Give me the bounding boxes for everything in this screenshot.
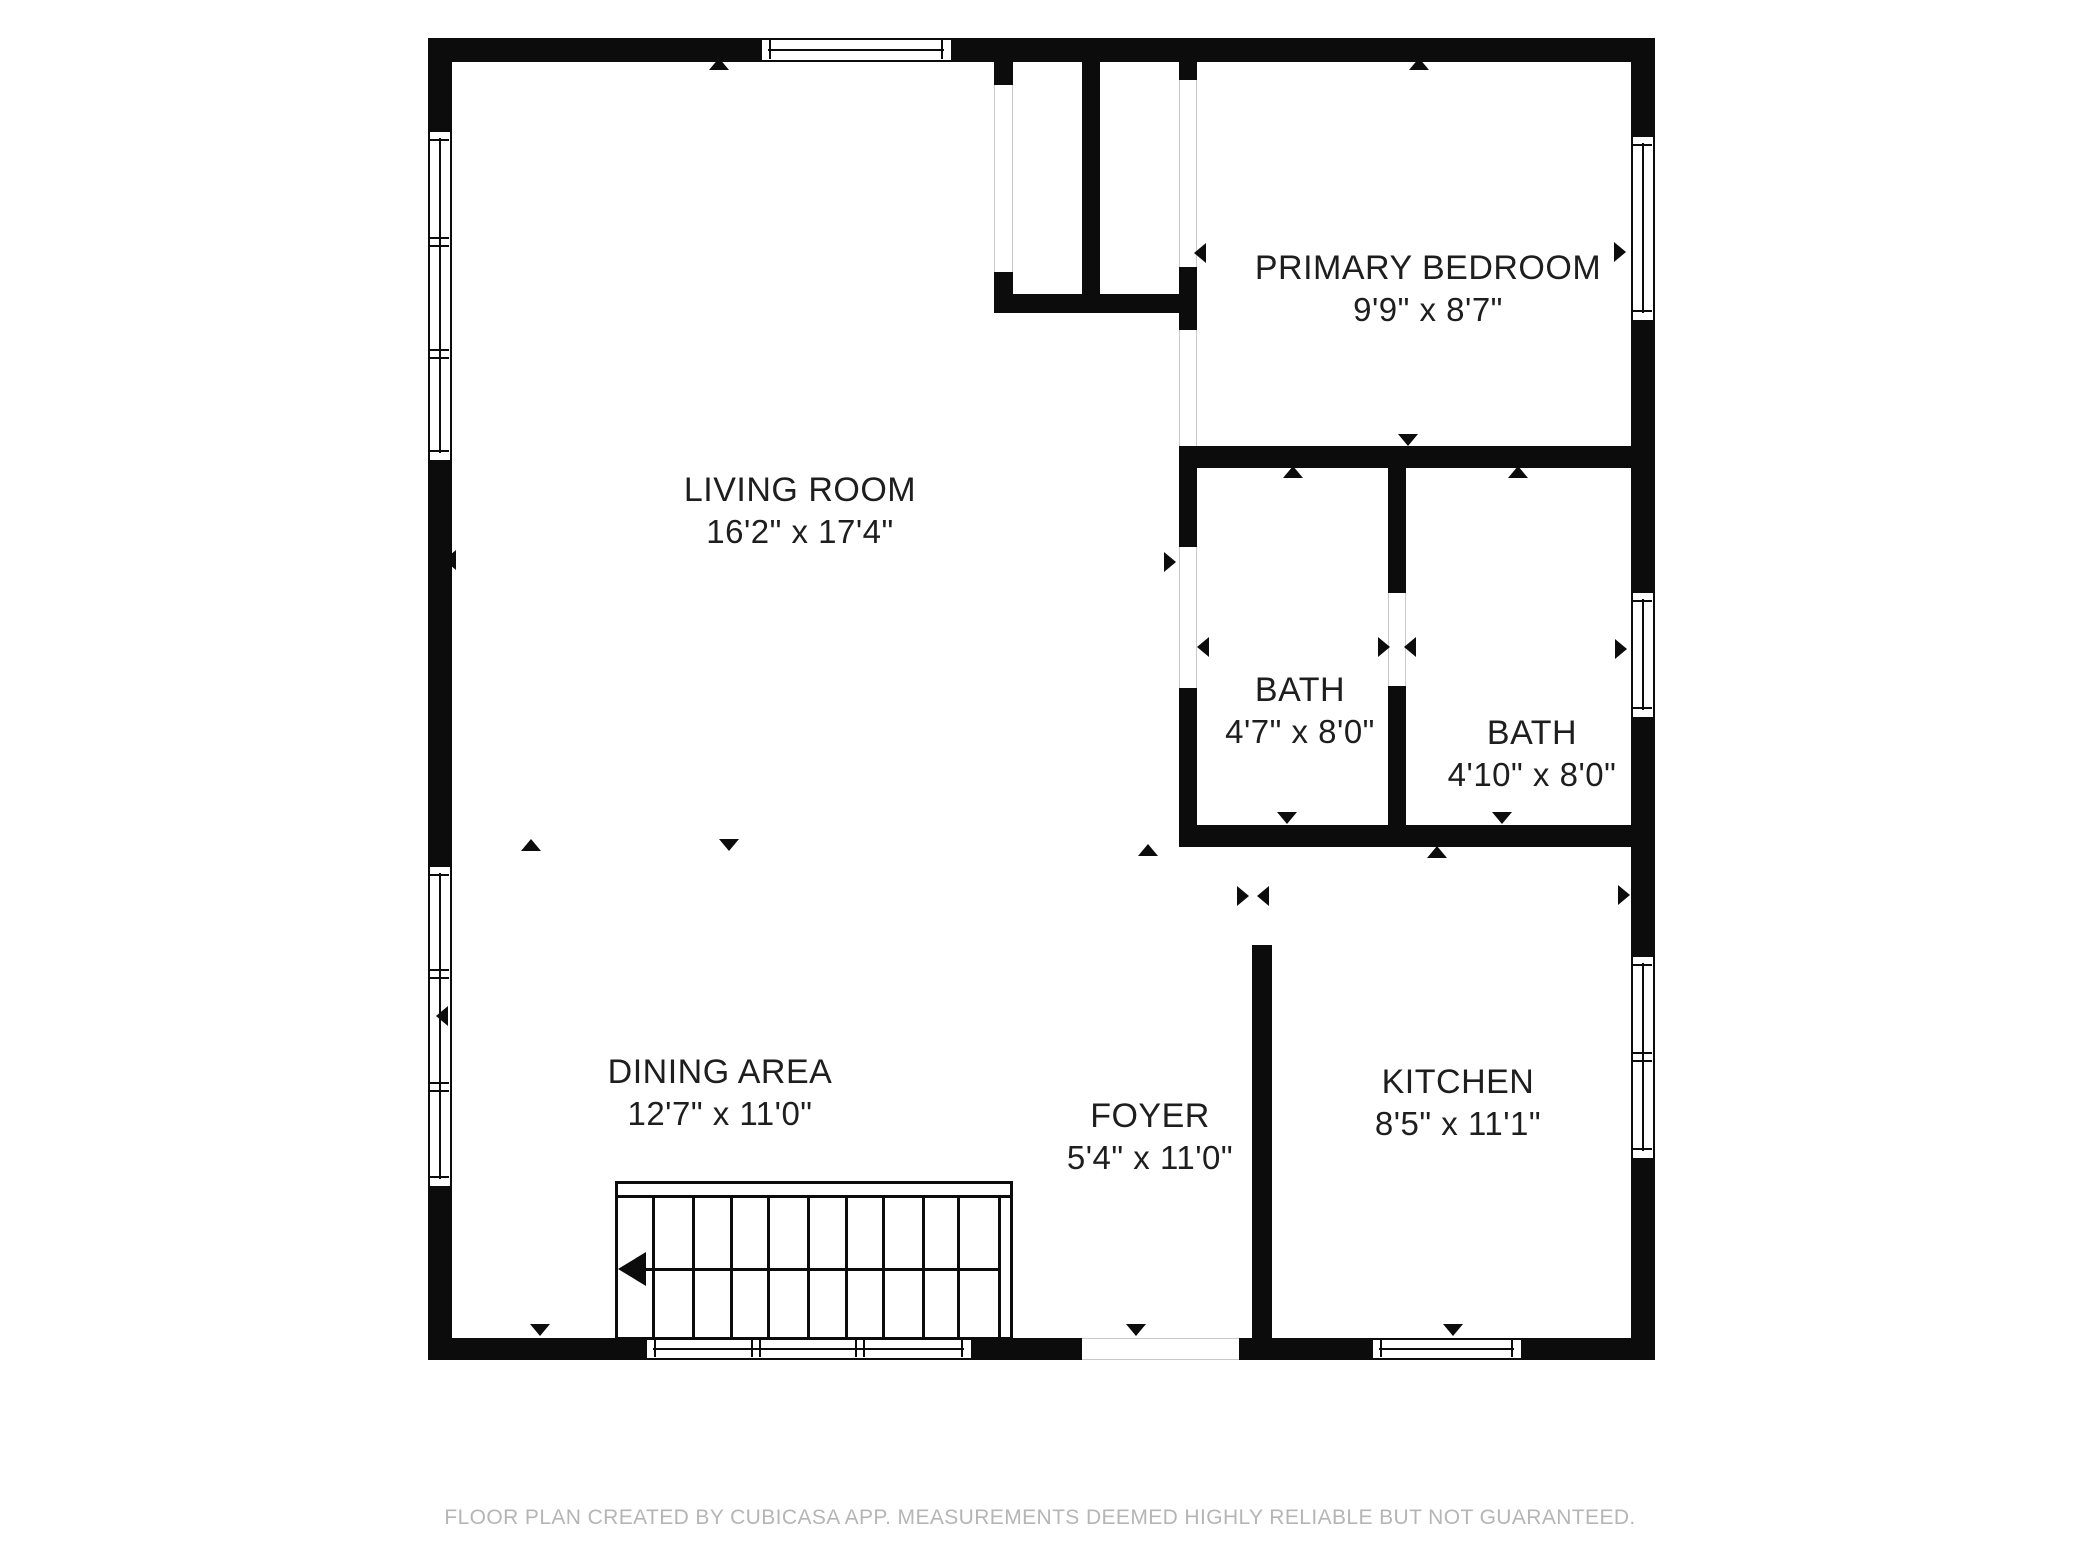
window-frame-line: [1633, 707, 1652, 709]
direction-marker-icon: [1197, 637, 1209, 657]
direction-marker-icon: [1194, 243, 1206, 263]
stair-tread-line: [767, 1195, 770, 1337]
stair-stringer-line: [998, 1195, 1001, 1337]
wall-segment: [994, 294, 1183, 313]
room-name-dining-area: DINING AREA: [608, 1051, 833, 1093]
room-name-primary-bedroom: PRIMARY BEDROOM: [1255, 247, 1601, 289]
room-dimensions-primary-bedroom: 9'9" x 8'7": [1255, 289, 1601, 331]
stair-direction-line: [632, 1268, 998, 1271]
stair-tread-line: [807, 1195, 810, 1337]
direction-marker-icon: [1237, 886, 1249, 906]
window: [428, 865, 452, 1188]
staircase: [615, 1181, 1013, 1340]
window-frame-line: [1642, 963, 1644, 1151]
window-frame-line: [1633, 1060, 1652, 1062]
direction-marker-icon: [1126, 1324, 1146, 1336]
stair-direction-arrow-icon: [618, 1252, 646, 1286]
door-opening: [1179, 547, 1197, 688]
stair-tread-line: [730, 1195, 733, 1337]
direction-marker-icon: [1615, 639, 1627, 659]
door-opening: [1179, 80, 1197, 267]
footer-disclaimer: FLOOR PLAN CREATED BY CUBICASA APP. MEAS…: [0, 1506, 2080, 1530]
direction-marker-icon: [1508, 466, 1528, 478]
window-frame-line: [430, 349, 449, 351]
window-frame-line: [855, 1340, 857, 1357]
window-frame-line: [430, 139, 449, 141]
floor-plan-canvas: FLOOR PLAN CREATED BY CUBICASA APP. MEAS…: [0, 0, 2080, 1560]
wall-segment: [1082, 62, 1100, 313]
stair-stringer-line: [618, 1195, 1010, 1198]
direction-marker-icon: [530, 1324, 550, 1336]
window-frame-line: [961, 1340, 963, 1357]
window-frame-line: [759, 1340, 761, 1357]
wall-segment: [994, 62, 1013, 85]
wall-segment: [953, 38, 1655, 62]
direction-marker-icon: [719, 839, 739, 851]
stair-tread-line: [692, 1195, 695, 1337]
direction-marker-icon: [521, 839, 541, 851]
window: [1631, 955, 1655, 1160]
wall-segment: [1631, 1160, 1655, 1360]
direction-marker-icon: [1427, 846, 1447, 858]
wall-segment: [1179, 825, 1655, 847]
window-frame-line: [1633, 600, 1652, 602]
window-frame-line: [430, 1176, 449, 1178]
room-dimensions-living-room: 16'2" x 17'4": [684, 511, 916, 553]
direction-marker-icon: [1404, 637, 1416, 657]
stair-tread-line: [652, 1195, 655, 1337]
window-frame-line: [430, 237, 449, 239]
room-label-living-room: LIVING ROOM16'2" x 17'4": [684, 469, 916, 553]
window-frame-line: [1511, 1340, 1513, 1357]
direction-marker-icon: [1277, 812, 1297, 824]
wall-segment: [1179, 62, 1197, 80]
stair-tread-line: [922, 1195, 925, 1337]
window-frame-line: [1633, 144, 1652, 146]
window-frame-line: [430, 977, 449, 979]
window: [645, 1338, 973, 1360]
window-frame-line: [1633, 1148, 1652, 1150]
window: [760, 38, 953, 62]
direction-marker-icon: [1614, 242, 1626, 262]
direction-marker-icon: [436, 1006, 448, 1026]
room-dimensions-bath-2: 4'10" x 8'0": [1448, 754, 1617, 796]
wall-segment: [1388, 686, 1406, 847]
room-name-foyer: FOYER: [1067, 1095, 1233, 1137]
direction-marker-icon: [1378, 637, 1390, 657]
window-frame-line: [430, 357, 449, 359]
window-frame-line: [430, 874, 449, 876]
direction-marker-icon: [709, 58, 729, 70]
room-dimensions-kitchen: 8'5" x 11'1": [1375, 1103, 1541, 1145]
window-frame-line: [653, 1348, 964, 1350]
wall-segment: [973, 1338, 1082, 1360]
window-frame-line: [1633, 310, 1652, 312]
direction-marker-icon: [1618, 885, 1630, 905]
room-label-bath-1: BATH4'7" x 8'0": [1225, 669, 1375, 753]
window-frame-line: [1633, 1052, 1652, 1054]
window-frame-line: [654, 1340, 656, 1357]
window-frame-line: [1633, 964, 1652, 966]
room-name-living-room: LIVING ROOM: [684, 469, 916, 511]
window-frame-line: [768, 49, 944, 51]
room-dimensions-dining-area: 12'7" x 11'0": [608, 1093, 833, 1135]
direction-marker-icon: [1409, 58, 1429, 70]
window-frame-line: [430, 1090, 449, 1092]
direction-marker-icon: [1398, 434, 1418, 446]
door-opening: [994, 85, 1013, 272]
window: [1371, 1338, 1523, 1360]
direction-marker-icon: [1257, 886, 1269, 906]
wall-segment: [1179, 468, 1197, 547]
window-frame-line: [863, 1340, 865, 1357]
wall-segment: [428, 1338, 645, 1360]
room-name-bath-1: BATH: [1225, 669, 1375, 711]
window-frame-line: [439, 873, 441, 1179]
room-name-kitchen: KITCHEN: [1375, 1061, 1541, 1103]
stair-tread-line: [957, 1195, 960, 1337]
window-frame-line: [430, 969, 449, 971]
window-frame-line: [439, 138, 441, 453]
wall-segment: [1179, 688, 1197, 847]
direction-marker-icon: [1164, 552, 1176, 572]
wall-segment: [1179, 267, 1197, 330]
wall-segment: [1631, 38, 1655, 135]
room-label-primary-bedroom: PRIMARY BEDROOM9'9" x 8'7": [1255, 247, 1601, 331]
door-opening: [1082, 1338, 1239, 1360]
wall-segment: [428, 38, 452, 130]
direction-marker-icon: [444, 550, 456, 570]
wall-segment: [1523, 1338, 1655, 1360]
direction-marker-icon: [1138, 844, 1158, 856]
door-opening: [1179, 330, 1197, 446]
room-dimensions-bath-1: 4'7" x 8'0": [1225, 711, 1375, 753]
window-frame-line: [1380, 1340, 1382, 1357]
direction-marker-icon: [1492, 812, 1512, 824]
window: [1631, 591, 1655, 719]
window-frame-line: [430, 245, 449, 247]
wall-segment: [428, 1188, 452, 1360]
window: [1631, 135, 1655, 322]
window-frame-line: [430, 450, 449, 452]
window-frame-line: [1642, 599, 1644, 710]
wall-segment: [1252, 945, 1272, 1360]
window-frame-line: [1642, 143, 1644, 313]
window: [428, 130, 452, 462]
room-dimensions-foyer: 5'4" x 11'0": [1067, 1137, 1233, 1179]
window-frame-line: [1379, 1348, 1514, 1350]
wall-segment: [994, 272, 1013, 294]
room-name-bath-2: BATH: [1448, 712, 1617, 754]
direction-marker-icon: [1283, 466, 1303, 478]
room-label-bath-2: BATH4'10" x 8'0": [1448, 712, 1617, 796]
stair-tread-line: [845, 1195, 848, 1337]
window-frame-line: [941, 40, 943, 59]
wall-segment: [428, 462, 452, 865]
window-frame-line: [769, 40, 771, 59]
wall-segment: [1179, 446, 1655, 468]
direction-marker-icon: [1443, 1324, 1463, 1336]
room-label-kitchen: KITCHEN8'5" x 11'1": [1375, 1061, 1541, 1145]
wall-segment: [1388, 468, 1406, 593]
room-label-dining-area: DINING AREA12'7" x 11'0": [608, 1051, 833, 1135]
window-frame-line: [751, 1340, 753, 1357]
window-frame-line: [430, 1082, 449, 1084]
stair-tread-line: [882, 1195, 885, 1337]
room-label-foyer: FOYER5'4" x 11'0": [1067, 1095, 1233, 1179]
